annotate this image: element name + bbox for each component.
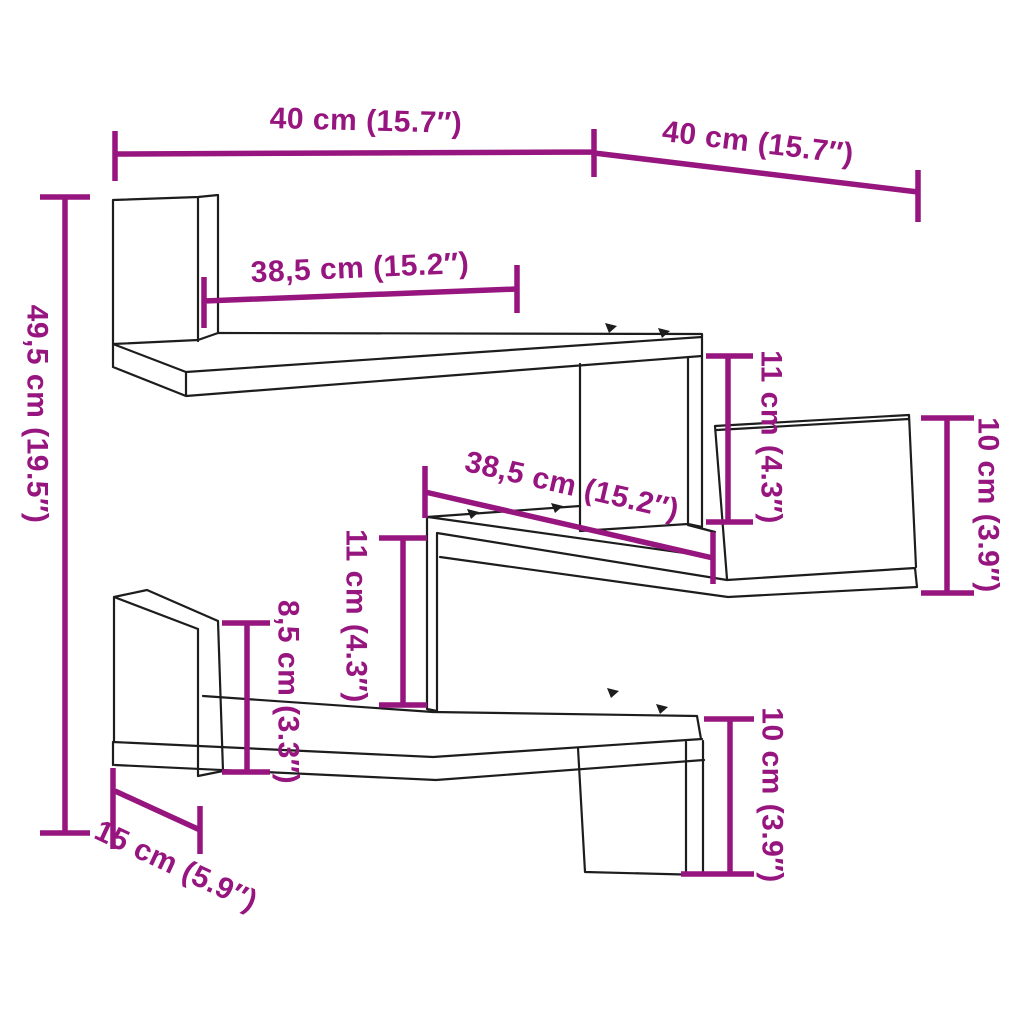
dim-label-back-panel-right: 10 cm (3.9″) [972,417,1005,592]
dim-label-shelf-depth: 15 cm (5.9″) [90,814,263,918]
dim-label-height-total: 49,5 cm (19.5″) [21,305,54,524]
dim-line-back-panel-right [921,418,974,593]
dim-label-side-panel-left: 8,5 cm (3.3″) [272,600,305,784]
dim-height-total: 49,5 cm (19.5″) [21,197,91,833]
dim-line-clearance-middle [379,538,427,705]
corner-shelf-dimension-drawing: 40 cm (15.7″) 40 cm (15.7″) 49,5 cm (19.… [0,0,1024,1024]
dim-width-top-right: 40 cm (15.7″) [594,115,918,222]
dim-label-shelf-top-length: 38,5 cm (15.2″) [250,247,470,290]
dim-clearance-middle: 11 cm (4.3″) [340,529,428,705]
dim-shelf-depth: 15 cm (5.9″) [90,768,263,918]
diagram-canvas: 40 cm (15.7″) 40 cm (15.7″) 49,5 cm (19.… [0,0,1024,1024]
dim-label-back-panel-bottom: 10 cm (3.9″) [756,707,789,882]
middle-support-face [427,517,437,711]
dim-line-width-top-right [594,153,918,222]
dim-back-panel-right: 10 cm (3.9″) [921,417,1005,593]
dim-width-top-left: 40 cm (15.7″) [115,102,594,181]
dim-label-clearance-right: 11 cm (4.3″) [755,350,788,524]
dim-shelf-top-length: 38,5 cm (15.2″) [204,247,517,328]
dim-label-width-top-left: 40 cm (15.7″) [269,102,462,140]
right-back-panel-face [715,414,916,579]
dim-label-clearance-middle: 11 cm (4.3″) [340,529,373,703]
